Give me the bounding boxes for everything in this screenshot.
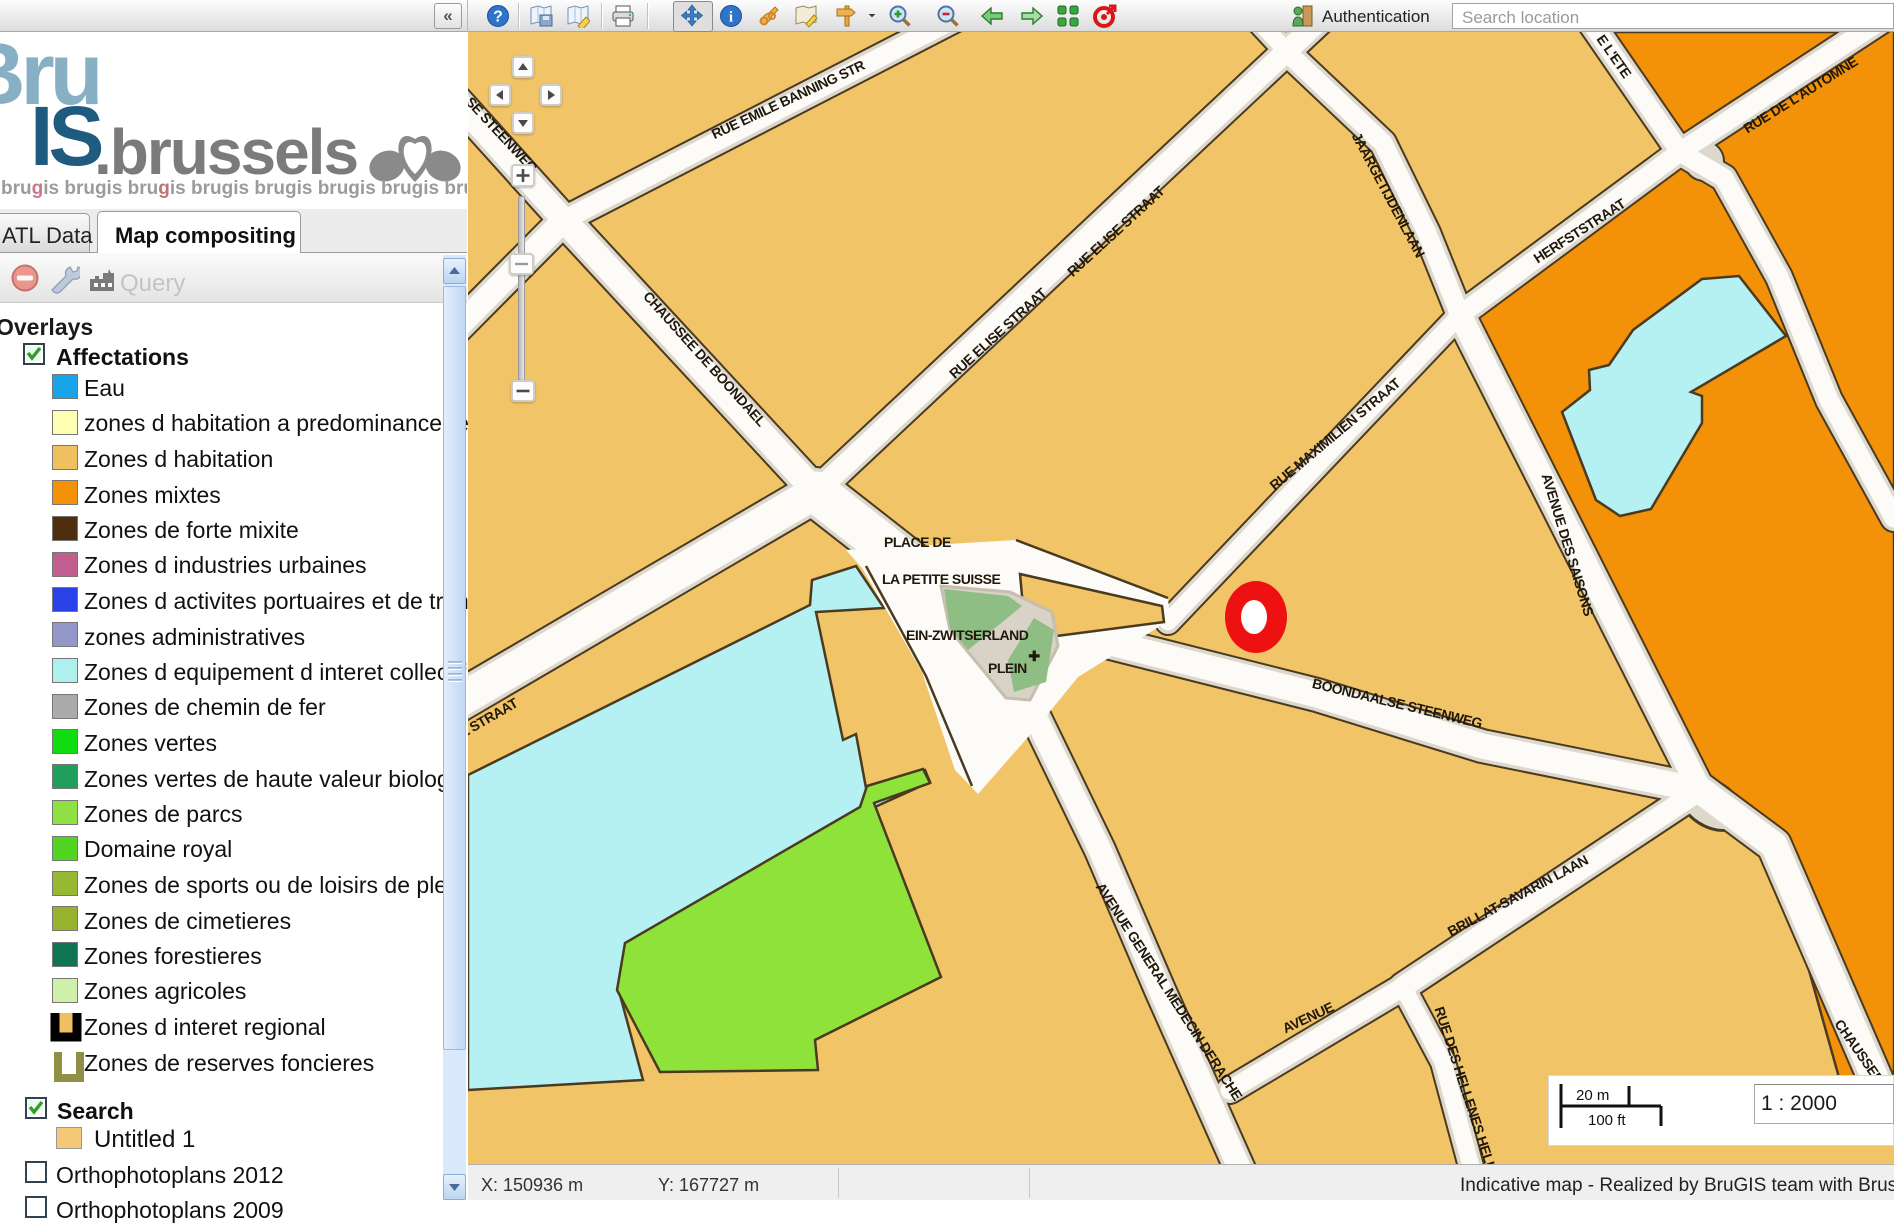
svg-text:PLEIN: PLEIN <box>988 660 1027 676</box>
svg-text:✚: ✚ <box>1028 648 1040 664</box>
svg-text:100 ft: 100 ft <box>1588 1112 1626 1129</box>
svg-text:20 m: 20 m <box>1576 1087 1609 1104</box>
svg-text:PLACE DE: PLACE DE <box>884 534 951 550</box>
svg-text:LA PETITE SUISSE: LA PETITE SUISSE <box>882 571 1000 587</box>
svg-text:EIN-ZWITSERLAND: EIN-ZWITSERLAND <box>906 627 1029 643</box>
